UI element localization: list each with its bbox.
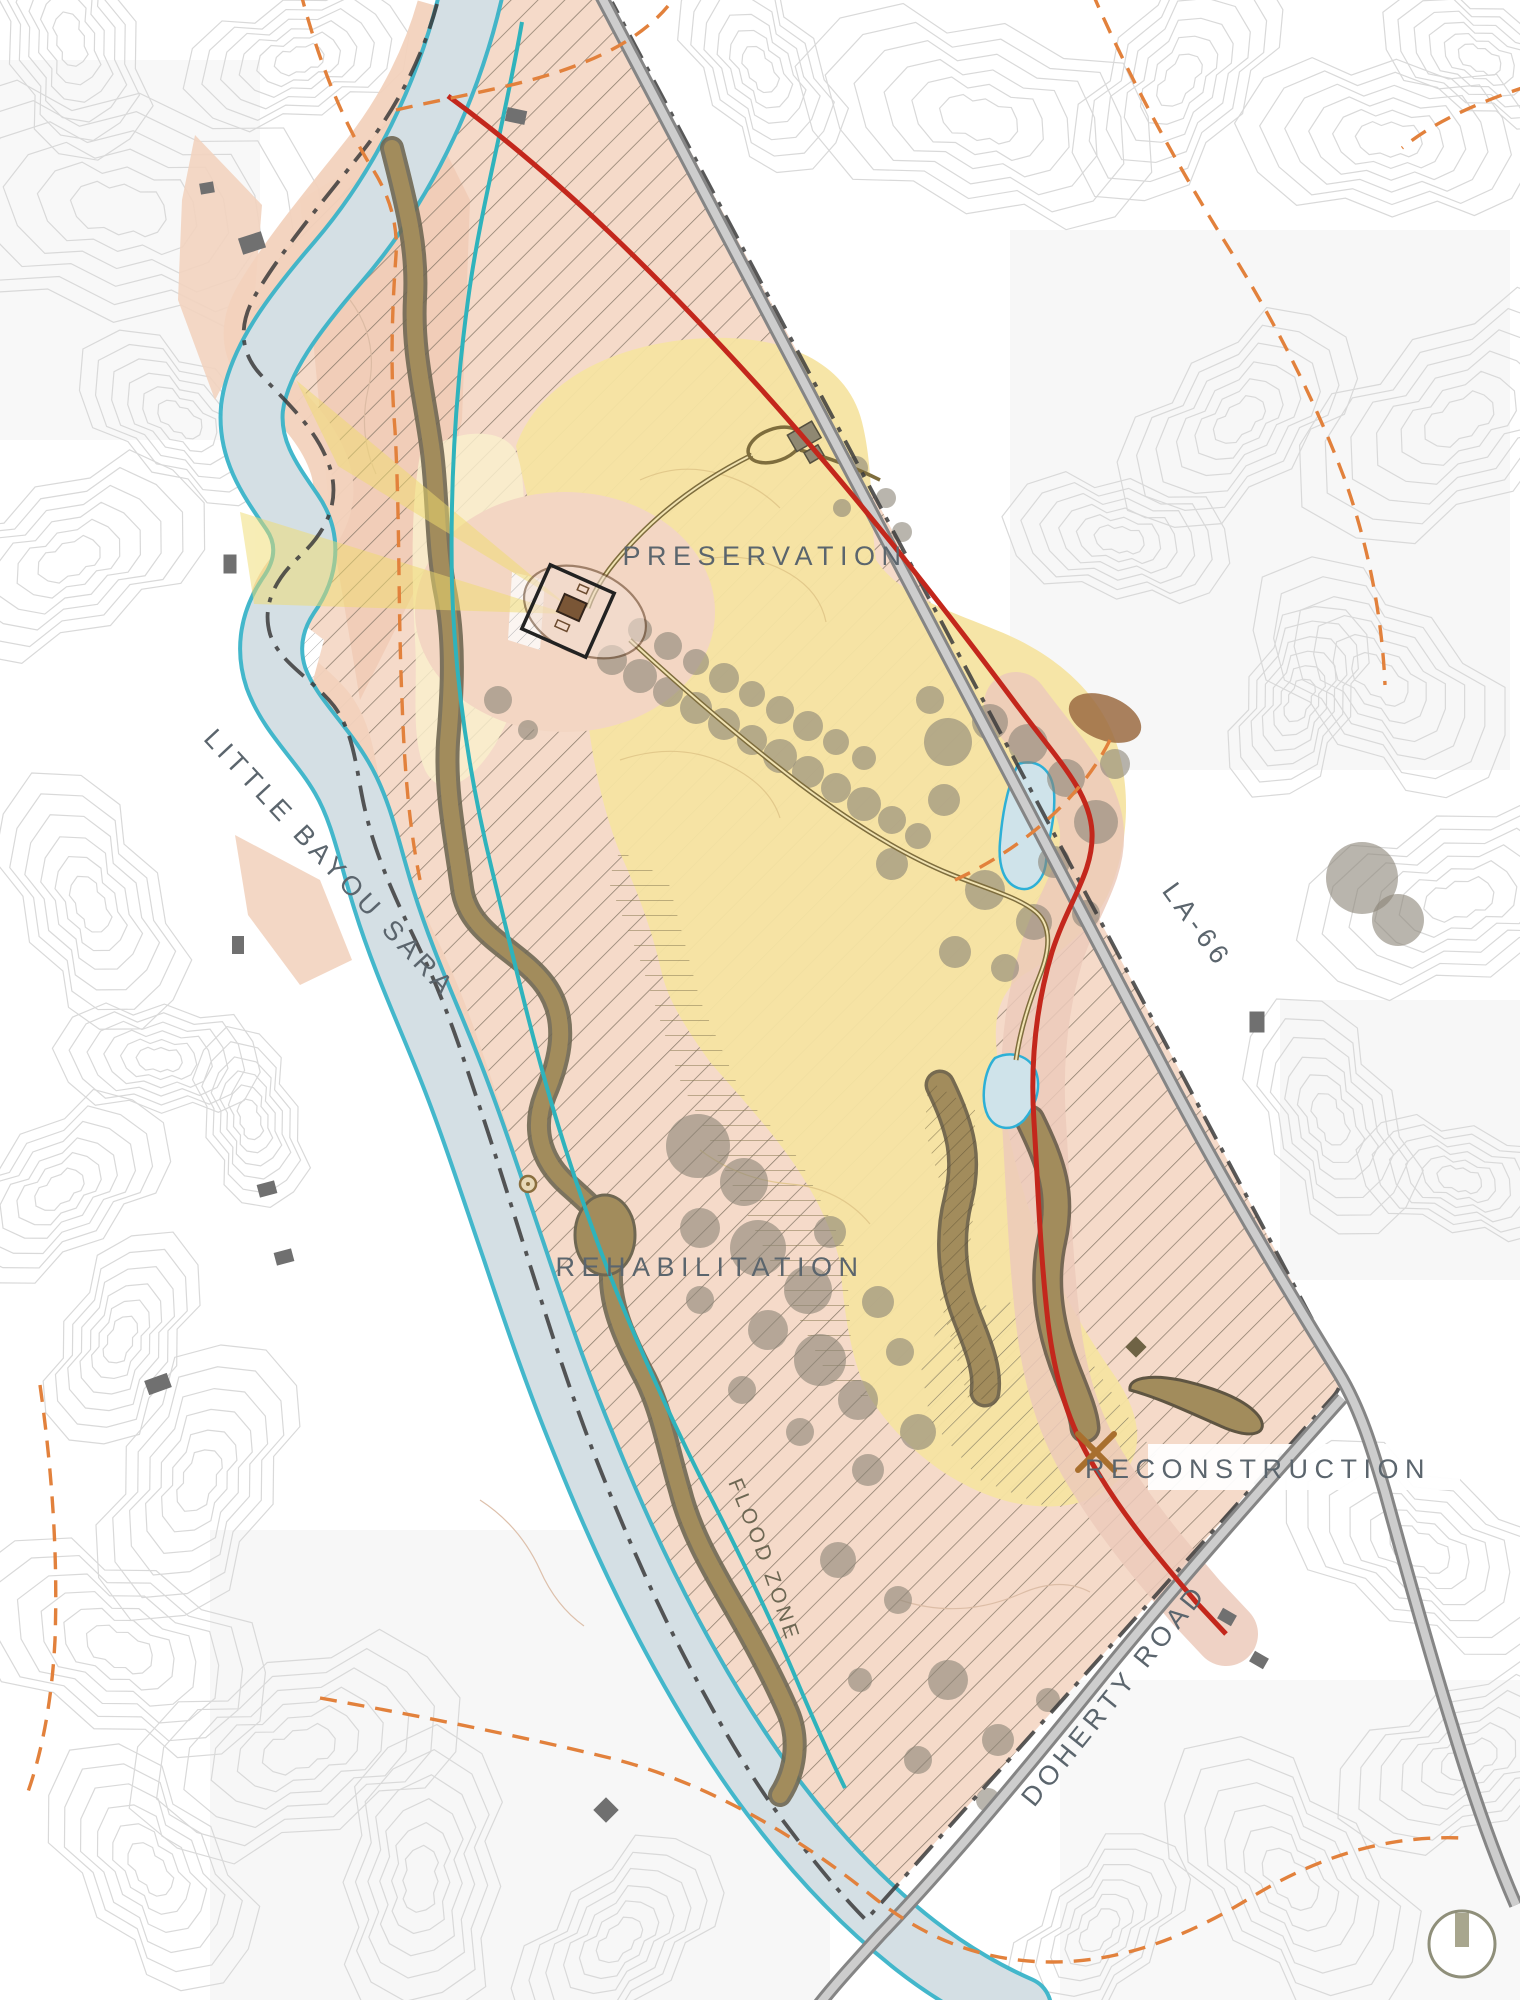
map-canvas: PRESERVATION REHABILITATION RECONSTRUCTI… xyxy=(0,0,1520,2000)
tree-canopy-blob xyxy=(884,1586,912,1614)
tree-canopy-blob xyxy=(904,1746,932,1774)
offsite-building xyxy=(1250,1012,1265,1033)
tree-canopy-blob xyxy=(1074,800,1118,844)
tree-canopy-blob xyxy=(720,1158,768,1206)
tree-canopy-blob xyxy=(833,499,851,517)
tree-canopy-blob xyxy=(686,1286,714,1314)
tree-canopy-blob xyxy=(886,1338,914,1366)
tree-canopy-blob xyxy=(838,1380,878,1420)
tree-canopy-blob xyxy=(623,659,657,693)
tree-canopy-blob xyxy=(939,936,971,968)
label-preservation: PRESERVATION xyxy=(622,541,907,571)
label-rehabilitation: REHABILITATION xyxy=(555,1252,864,1282)
north-arrow-icon xyxy=(1429,1911,1495,1977)
tree-canopy-blob xyxy=(982,1724,1014,1756)
tree-canopy-blob xyxy=(852,746,876,770)
tree-canopy-blob xyxy=(820,1542,856,1578)
tree-canopy-blob xyxy=(766,696,794,724)
tree-canopy-blob xyxy=(680,1208,720,1248)
tree-canopy-blob xyxy=(928,1660,968,1700)
label-reconstruction: RECONSTRUCTION xyxy=(1085,1454,1431,1484)
tree-canopy-blob xyxy=(654,632,682,660)
tree-canopy-blob xyxy=(847,787,881,821)
site-master-plan-map: PRESERVATION REHABILITATION RECONSTRUCTI… xyxy=(0,0,1520,2000)
tree-canopy-blob xyxy=(728,1376,756,1404)
offsite-building xyxy=(232,936,244,954)
tree-canopy-blob xyxy=(518,720,538,740)
tree-canopy-blob xyxy=(928,784,960,816)
tree-canopy-blob xyxy=(794,1334,846,1386)
tree-canopy-blob xyxy=(924,718,972,766)
subdivision-patch xyxy=(1280,1000,1520,1280)
tree-canopy-blob xyxy=(814,1216,846,1248)
tree-canopy-blob xyxy=(848,1668,872,1692)
tree-canopy-blob xyxy=(484,686,512,714)
compass-north-bar xyxy=(1455,1913,1469,1947)
tree-canopy-blob xyxy=(793,711,823,741)
tree-canopy-blob xyxy=(666,1114,730,1178)
tree-canopy-blob xyxy=(862,1286,894,1318)
tree-canopy-blob xyxy=(900,1414,936,1450)
tree-canopy-blob xyxy=(739,681,765,707)
tree-canopy-blob xyxy=(852,1454,884,1486)
point-marker xyxy=(520,1176,536,1192)
tree-canopy-blob xyxy=(683,649,709,675)
tree-canopy-blob xyxy=(916,686,944,714)
tree-canopy-blob xyxy=(821,773,851,803)
offsite-building xyxy=(224,555,237,574)
circle-marker-dot xyxy=(526,1182,530,1186)
tree-canopy-blob xyxy=(991,954,1019,982)
tree-canopy-blob xyxy=(1372,894,1424,946)
tree-canopy-blob xyxy=(878,806,906,834)
tree-canopy-blob xyxy=(905,823,931,849)
tree-canopy-blob xyxy=(709,663,739,693)
tree-canopy-blob xyxy=(823,729,849,755)
tree-canopy-blob xyxy=(786,1418,814,1446)
tree-canopy-blob xyxy=(748,1310,788,1350)
subdivision-patch xyxy=(1010,230,1510,770)
